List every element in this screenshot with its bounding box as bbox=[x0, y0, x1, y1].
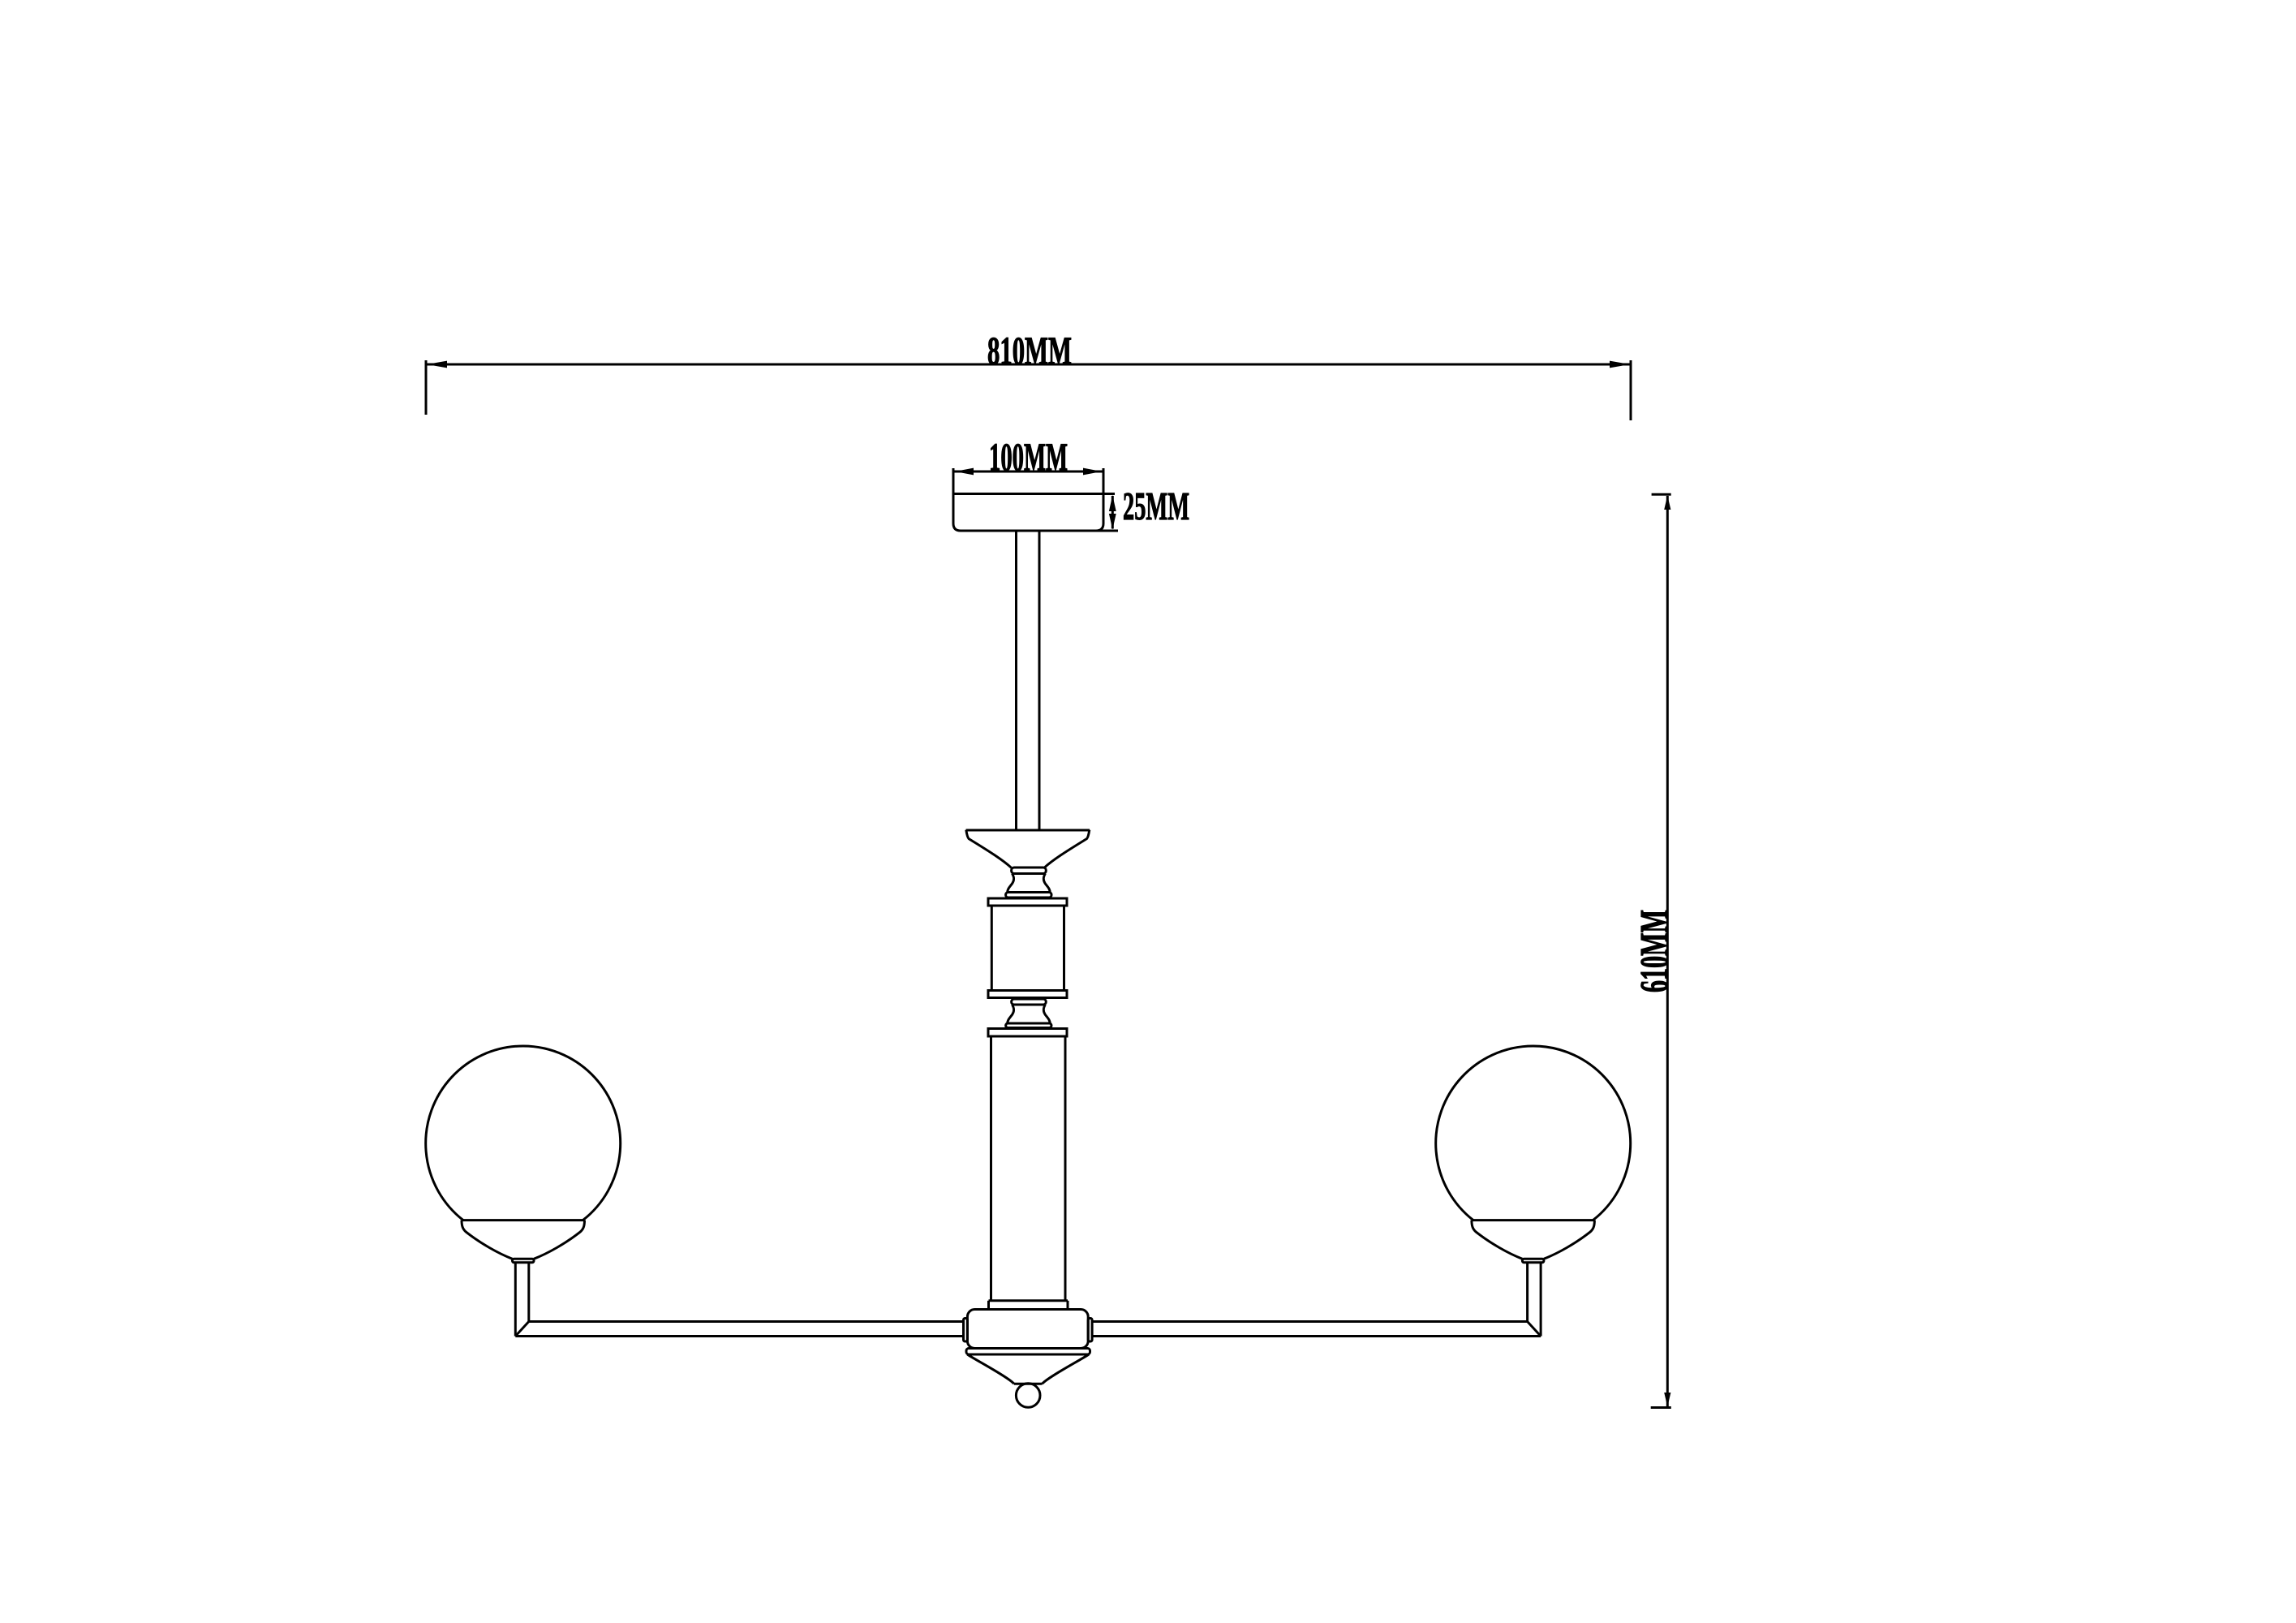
svg-text:810MM: 810MM bbox=[987, 329, 1072, 373]
svg-text:610MM: 610MM bbox=[1632, 910, 1676, 992]
svg-text:25MM: 25MM bbox=[1123, 484, 1189, 528]
